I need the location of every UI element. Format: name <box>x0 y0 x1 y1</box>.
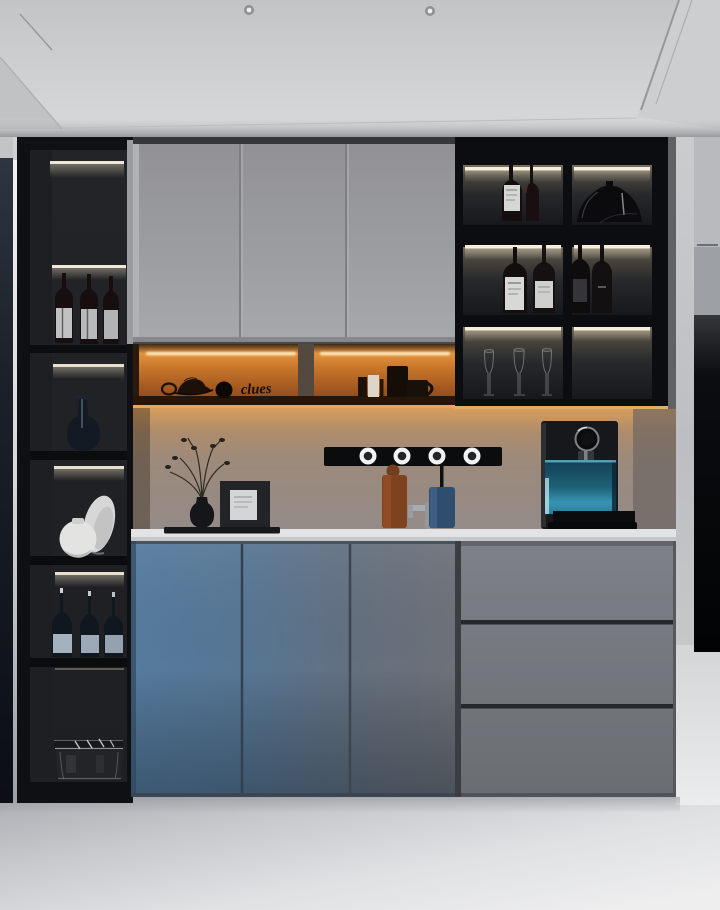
svg-text:clues: clues <box>241 381 273 398</box>
